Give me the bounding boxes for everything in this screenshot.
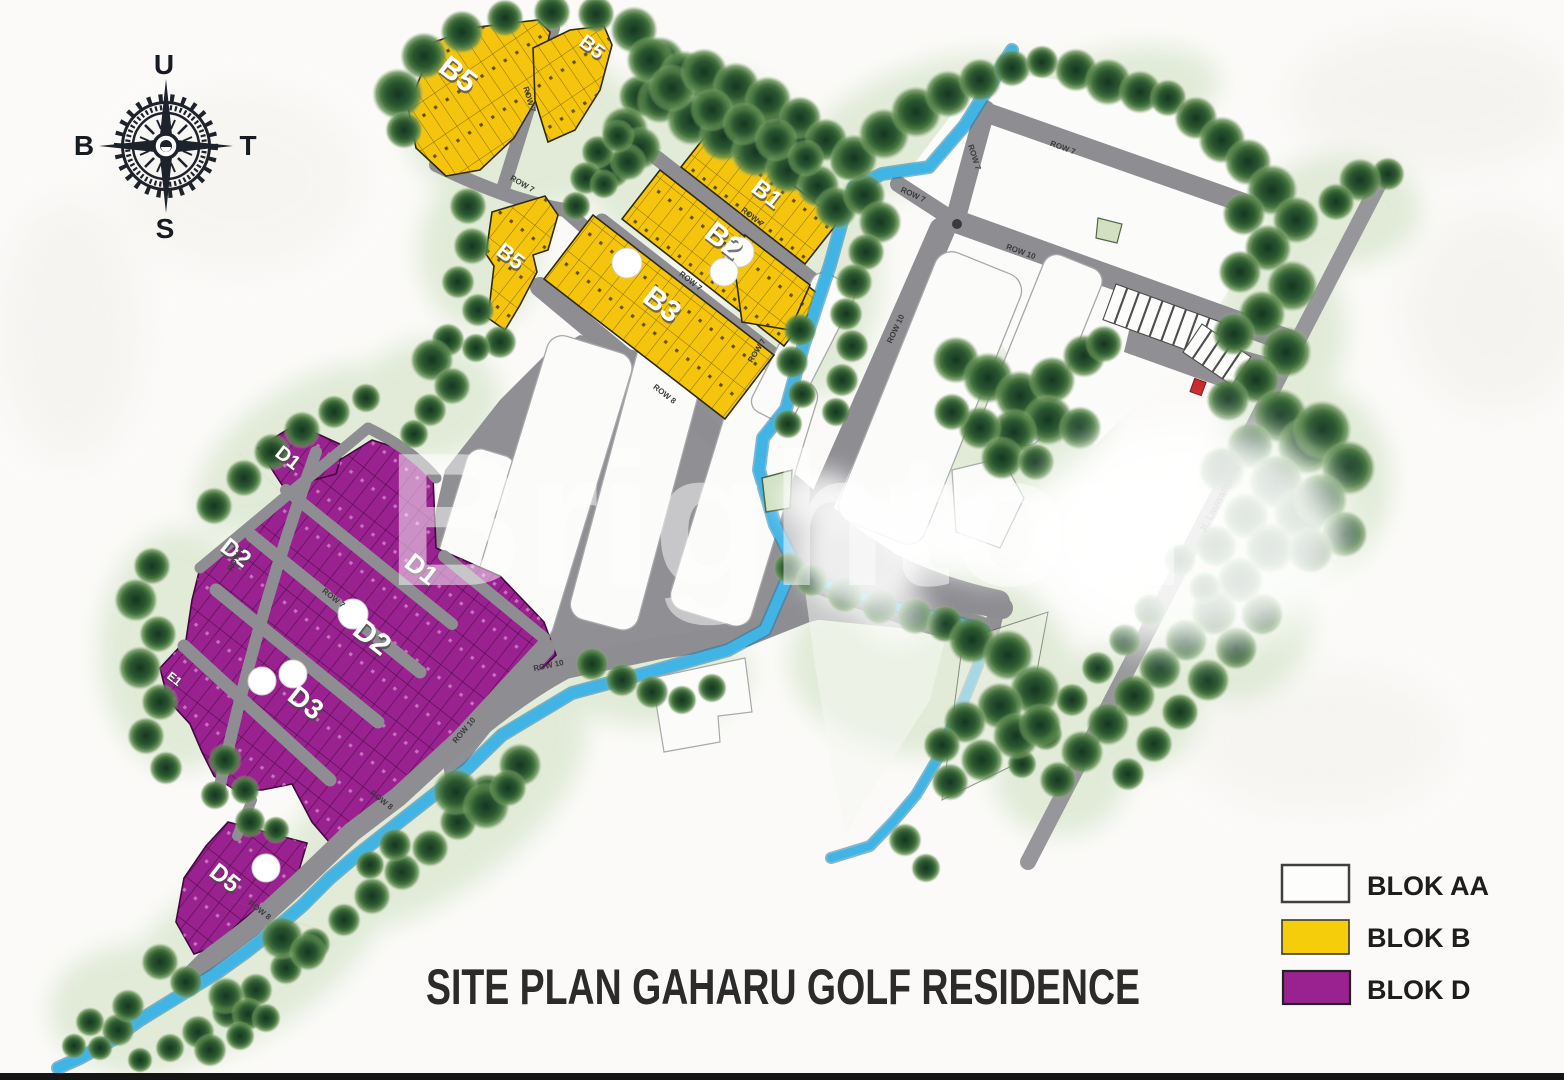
svg-text:BLOK D: BLOK D <box>1367 975 1471 1005</box>
svg-text:B: B <box>74 130 94 161</box>
svg-text:U: U <box>154 49 174 80</box>
svg-text:BLOK B: BLOK B <box>1367 923 1471 953</box>
svg-text:Brighton: Brighton <box>386 414 1186 626</box>
svg-text:T: T <box>239 130 256 161</box>
svg-text:BLOK AA: BLOK AA <box>1367 871 1489 901</box>
svg-text:SITE PLAN GAHARU GOLF RESIDENC: SITE PLAN GAHARU GOLF RESIDENCE <box>426 959 1140 1015</box>
svg-text:S: S <box>156 213 175 244</box>
